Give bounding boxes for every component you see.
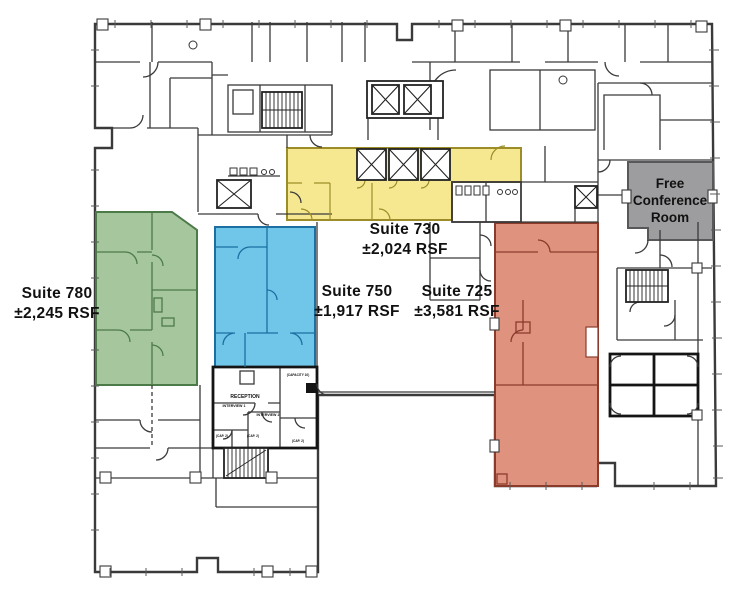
suite-750-label: Suite 750 <box>322 283 393 300</box>
conference-room-label-line1: Free <box>656 176 685 191</box>
conference-room-label-line3: Room <box>651 210 689 225</box>
cap2-label: (CAP. 2) <box>216 434 228 438</box>
suite-780-rsf: ±2,245 RSF <box>14 305 100 322</box>
suite-750-region <box>215 227 315 367</box>
conference-room-label-line2: Conference <box>633 193 708 208</box>
corridor-notch <box>586 327 598 357</box>
suite-725-rsf: ±3,581 RSF <box>414 303 500 320</box>
interview1-label: INTERVIEW 1 <box>223 404 246 408</box>
capacity10-label: (CAPACITY 10) <box>287 373 310 377</box>
interview2-label: INTERVIEW 2 <box>257 413 280 417</box>
suite-780-label: Suite 780 <box>22 285 93 302</box>
suite-725-label: Suite 725 <box>422 283 493 300</box>
cap2-label: (CAP. 2) <box>292 439 304 443</box>
floor-plan: Suite 780 ±2,245 RSF Suite 750 ±1,917 RS… <box>0 0 750 600</box>
reception-label: RECEPTION <box>230 394 260 400</box>
suite-730-label: Suite 730 <box>370 221 441 238</box>
suite-780-region <box>96 212 197 385</box>
ceiling-fixture-icon <box>189 41 197 49</box>
wall-fill <box>306 383 316 393</box>
floor-plan-page: Suite 780 ±2,245 RSF Suite 750 ±1,917 RS… <box>0 0 750 600</box>
suite-750-rsf: ±1,917 RSF <box>314 303 400 320</box>
suite-730-rsf: ±2,024 RSF <box>362 241 448 258</box>
cap2-label: (CAP. 2) <box>247 434 259 438</box>
ceiling-fixture-icon <box>559 76 567 84</box>
suite-725-region <box>495 223 598 486</box>
